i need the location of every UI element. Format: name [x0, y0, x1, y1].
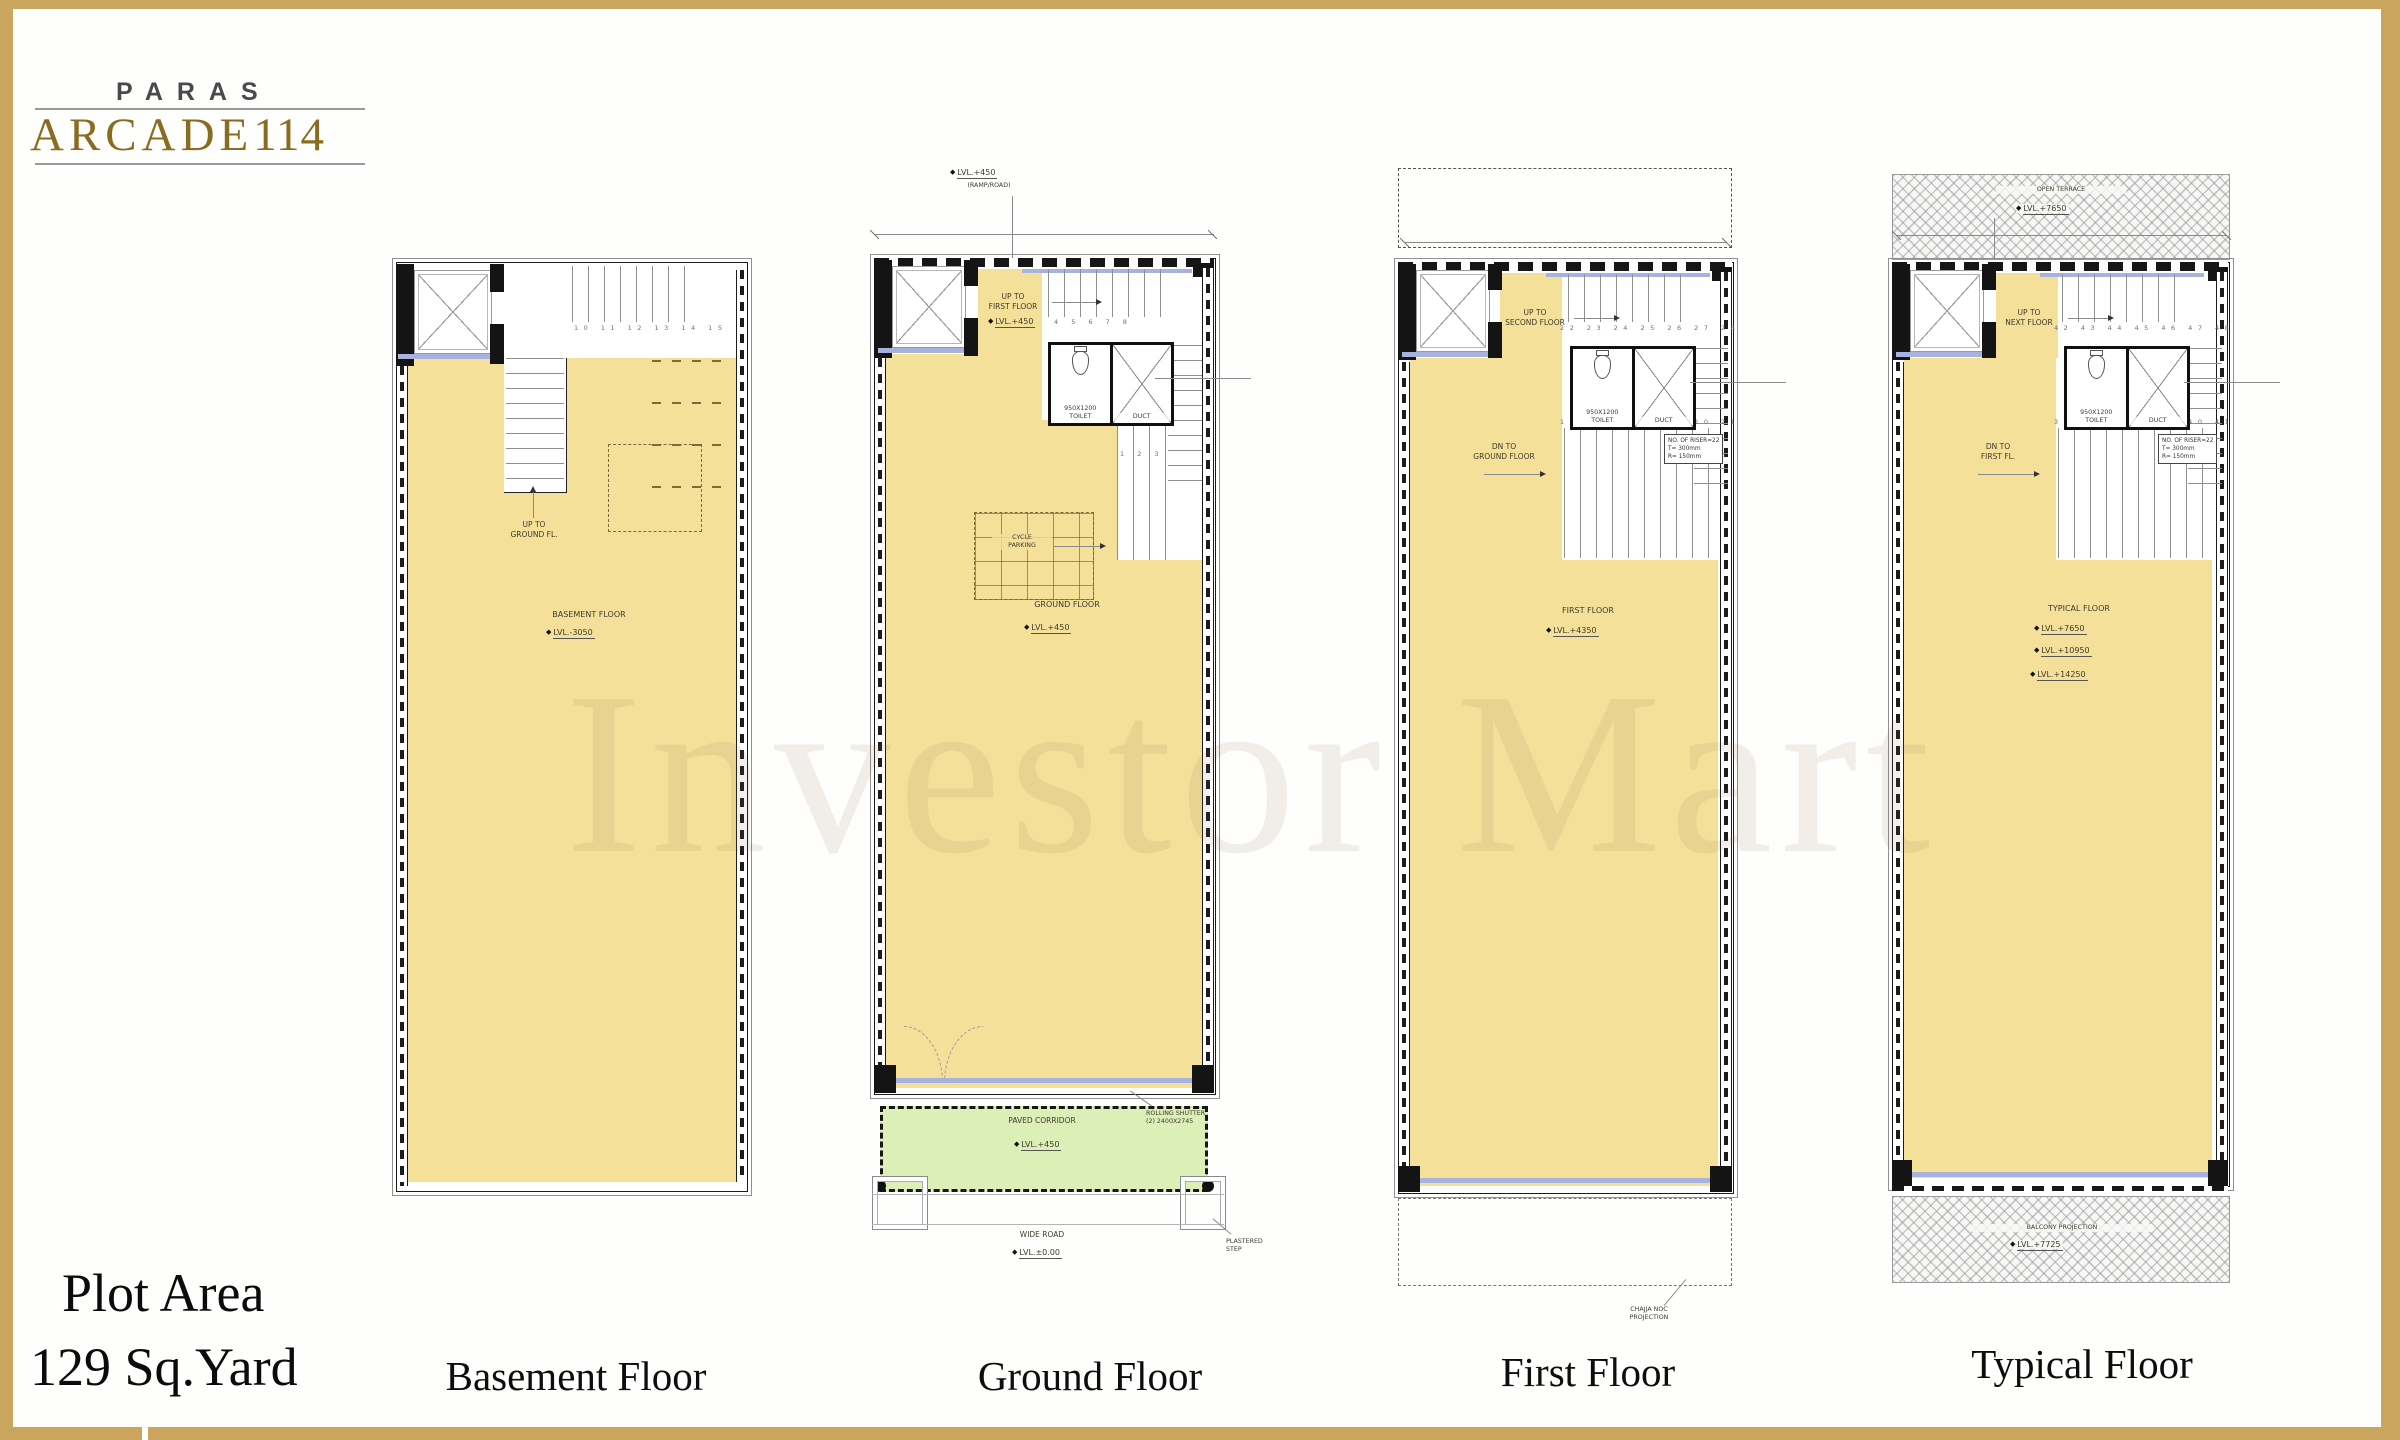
- balcony-level-text: LVL.+7725: [2017, 1240, 2062, 1251]
- basement-wall-block: [396, 264, 414, 366]
- riser-size: R= 150mm: [1668, 453, 1719, 461]
- typical-level-2: ◆LVL.+10950: [2034, 646, 2092, 655]
- kerb-note-line1: PLASTERED: [1226, 1238, 1263, 1245]
- frame-bottom-notch: [142, 1427, 148, 1440]
- ground-floor-area: [1042, 560, 1202, 1088]
- level-marker-icon: ◆: [2010, 1240, 2015, 1248]
- floor-plan-ground: ◆LVL.+450 (RAMP/ROAD) 4 5 6 7 8 1 2 3: [862, 168, 1226, 1313]
- kerb-note: PLASTERED STEP: [1226, 1238, 1296, 1254]
- stair-step-numbers: 42 43 44 45 46 47 48: [2054, 324, 2234, 332]
- up-label-line2: NEXT FLOOR: [2005, 318, 2053, 327]
- toilet-size: 950X1200: [1586, 409, 1618, 416]
- level-marker-icon: ◆: [988, 317, 993, 325]
- stair-treads-lower: [1117, 420, 1169, 560]
- frame-bottom: [0, 1427, 2400, 1440]
- lift-shaft: [1416, 270, 1490, 352]
- dimension-line: [874, 234, 1214, 235]
- dimension-line: [1404, 242, 1726, 243]
- shutter-note-line2: (2) 2400X2745: [1146, 1118, 1193, 1125]
- window-line: [1410, 1178, 1720, 1183]
- floor-plan-basement: 10 11 12 13 14 15 UP TO GROUND FL. BASEM…: [396, 262, 748, 1192]
- toilet-block: 950X1200 TOILET DUCT: [1570, 346, 1696, 430]
- duct-label: DUCT: [2129, 417, 2188, 425]
- open-to-below-outline: [1398, 168, 1732, 248]
- wall-block: [1982, 264, 1996, 290]
- stair-arrow-line: [1052, 302, 1096, 303]
- duct-shaft: DUCT: [1632, 349, 1694, 427]
- toilet-room: 950X1200 TOILET: [1573, 349, 1632, 427]
- arrow-right-icon: [2108, 315, 2114, 321]
- ramp-level: ◆LVL.+450: [950, 168, 997, 177]
- dn-label-line1: DN TO: [1986, 442, 2010, 451]
- caption-basement: Basement Floor: [404, 1352, 748, 1400]
- grid-label-line1: CYCLE: [1012, 534, 1032, 541]
- wall-block: [1488, 264, 1502, 290]
- leader-line: [1155, 378, 1251, 379]
- window-line: [1904, 1172, 2212, 1177]
- toilet-size: 950X1200: [1064, 405, 1096, 412]
- first-room-label: FIRST FLOOR: [1538, 606, 1638, 616]
- noc-note-line1: CHAJJA NOC: [1630, 1306, 1667, 1313]
- corner-block: [1192, 1065, 1214, 1093]
- level-marker-icon: ◆: [1014, 1140, 1019, 1148]
- dn-label-line2: GROUND FLOOR: [1473, 452, 1534, 461]
- toilet-room: 950X1200 TOILET: [2067, 349, 2126, 427]
- stair-data-box: NO. OF RISER=22 T= 300mm R= 150mm: [1664, 434, 1723, 464]
- ramp-note: (RAMP/ROAD): [944, 182, 1034, 190]
- shutter-note: ROLLING SHUTTER (2) 2400X2745: [1146, 1110, 1228, 1126]
- first-floor-area: [1410, 358, 1562, 1186]
- toilet-name: TOILET: [1591, 417, 1613, 424]
- noc-note: CHAJJA NOC PROJECTION: [1604, 1306, 1694, 1322]
- dim-tick: [870, 230, 879, 239]
- arrow-right-icon: [1614, 315, 1620, 321]
- typical-wall-bottom: [1892, 1186, 2228, 1191]
- floor-plan-first: 22 23 24 25 26 27 28 15 16 17 18 19 20 2…: [1388, 166, 1742, 1356]
- arrow-right-icon: [1100, 543, 1106, 549]
- duct-shaft: DUCT: [1110, 345, 1172, 423]
- level-marker-icon: ◆: [2030, 670, 2035, 678]
- arrow-right-icon: [1096, 299, 1102, 305]
- lift-door-line: [1402, 352, 1488, 357]
- dim-tick: [2222, 231, 2231, 240]
- toilet-block: 950X1200 TOILET DUCT: [1048, 342, 1174, 426]
- wall-block: [1892, 264, 1910, 360]
- ground-floor-area: [978, 269, 1042, 354]
- tread-size: T= 300mm: [1668, 445, 1719, 453]
- caption-first: First Floor: [1416, 1348, 1760, 1396]
- terrace-level: ◆LVL.+7650: [2016, 204, 2069, 213]
- dimension-line: [1896, 235, 2226, 236]
- up-label-line2: FIRST FLOOR: [989, 302, 1038, 311]
- wall-block: [964, 260, 978, 286]
- lift-shaft: [414, 270, 492, 354]
- stair-step-numbers: 22 23 24 25 26 27 28: [1560, 324, 1740, 332]
- riser-size: R= 150mm: [2162, 453, 2213, 461]
- first-floor-area: [1562, 560, 1718, 1186]
- arrow-right-icon: [2034, 471, 2040, 477]
- balcony-level: ◆LVL.+7725: [2010, 1240, 2063, 1249]
- corridor-level-text: LVL.+450: [1021, 1140, 1061, 1151]
- typical-up-label: UP TO NEXT FLOOR: [1994, 308, 2064, 328]
- toilet-name: TOILET: [1069, 413, 1091, 420]
- dn-label-line2: FIRST FL.: [1981, 452, 2015, 461]
- up-label-line1: UP TO: [523, 520, 546, 529]
- stair-arrow-line: [1574, 318, 1614, 319]
- level-marker-icon: ◆: [1024, 623, 1029, 631]
- brand-main-text: ARCADE114: [30, 108, 325, 162]
- tread-size: T= 300mm: [2162, 445, 2213, 453]
- brand-number: 114: [253, 109, 325, 161]
- first-level-text: LVL.+4350: [1553, 626, 1598, 637]
- parking-grid: [974, 512, 1094, 600]
- entry-level: ◆LVL.+450: [988, 317, 1035, 326]
- basement-room-label: BASEMENT FLOOR: [534, 610, 644, 620]
- floor-plan-typical: OPEN TERRACE ◆LVL.+7650 42 43 44 45 46 4…: [1886, 166, 2236, 1291]
- toilet-block: 950X1200 TOILET DUCT: [2064, 346, 2190, 430]
- wall-block: [874, 260, 892, 358]
- up-label-line2: SECOND FLOOR: [1505, 318, 1565, 327]
- road-level-text: LVL.±0.00: [1019, 1248, 1062, 1259]
- parking-bay: [608, 444, 702, 532]
- ramp-level-text: LVL.+450: [957, 168, 997, 179]
- stair-step-numbers: 1 2 3: [1120, 450, 1164, 458]
- lift-door-line: [398, 354, 490, 359]
- stair-step-numbers: 4 5 6 7 8: [1054, 318, 1132, 326]
- ground-up-label: UP TO FIRST FLOOR: [978, 292, 1048, 312]
- typical-level-3-text: LVL.+14250: [2037, 670, 2087, 681]
- duct-label: DUCT: [1113, 413, 1172, 421]
- lift-door-line: [878, 348, 964, 353]
- ground-room-label: GROUND FLOOR: [1012, 600, 1122, 610]
- up-label-line1: UP TO: [2018, 308, 2041, 317]
- kerb-line: [872, 1224, 1224, 1225]
- basement-wall-left: [396, 366, 408, 1186]
- wall-block: [964, 318, 978, 356]
- basement-up-label: UP TO GROUND FL.: [494, 520, 574, 540]
- ground-level: ◆LVL.+450: [1024, 623, 1071, 632]
- basement-step-numbers: 10 11 12 13 14 15: [574, 324, 727, 332]
- duct-shaft: DUCT: [2126, 349, 2188, 427]
- typical-room-label: TYPICAL FLOOR: [2024, 604, 2134, 614]
- grid-label-line2: PARKING: [1008, 542, 1036, 549]
- toilet-label: 950X1200 TOILET: [1573, 409, 1632, 425]
- basement-stair-treads: [506, 358, 564, 490]
- arrow-right-icon: [1540, 471, 1546, 477]
- duct-label: DUCT: [1635, 417, 1694, 425]
- frame-left: [0, 0, 13, 1440]
- arrow-up-icon: [530, 486, 536, 492]
- riser-count: NO. OF RISER=22: [2162, 437, 2213, 445]
- typical-level-3: ◆LVL.+14250: [2030, 670, 2088, 679]
- level-marker-icon: ◆: [2034, 624, 2039, 632]
- corridor-label: PAVED CORRIDOR: [962, 1116, 1122, 1126]
- leader-line: [1012, 196, 1013, 258]
- logo-rule-bottom: [35, 163, 365, 165]
- noc-note-line2: PROJECTION: [1630, 1314, 1669, 1321]
- parking-mark: [652, 402, 732, 404]
- first-dn-label: DN TO GROUND FLOOR: [1466, 442, 1542, 462]
- shopfront-glazing-line: [886, 1078, 1202, 1083]
- dim-tick: [1892, 231, 1901, 240]
- leader-line: [1690, 382, 1786, 383]
- basement-wall-right: [736, 270, 748, 1182]
- toilet-label: 950X1200 TOILET: [2067, 409, 2126, 425]
- up-label-line1: UP TO: [1002, 292, 1025, 301]
- ground-wall-left: [874, 358, 886, 1088]
- caption-ground: Ground Floor: [918, 1352, 1262, 1400]
- level-marker-icon: ◆: [546, 628, 551, 636]
- plot-area-title: Plot Area: [62, 1262, 264, 1324]
- first-up-label: UP TO SECOND FLOOR: [1500, 308, 1570, 328]
- parking-mark: [652, 360, 732, 362]
- typical-level-1: ◆LVL.+7650: [2034, 624, 2087, 633]
- leader-line: [1054, 546, 1100, 547]
- basement-level-text: LVL.-3050: [553, 628, 594, 639]
- toilet-size: 950X1200: [2080, 409, 2112, 416]
- terrace-level-text: LVL.+7650: [2023, 204, 2068, 215]
- kerb-line: [872, 1194, 1224, 1195]
- first-wall-left: [1398, 362, 1410, 1186]
- corner-block: [1892, 1160, 1912, 1186]
- entry-level-text: LVL.+450: [995, 317, 1035, 328]
- wc-icon: [1072, 351, 1089, 375]
- toilet-name: TOILET: [2085, 417, 2107, 424]
- stair-treads-upper: [1048, 269, 1168, 317]
- brand-top-text: PARAS: [116, 78, 272, 107]
- wall-block: [1398, 264, 1416, 360]
- stair-arrow-line: [533, 492, 534, 518]
- stair-arrow-line: [1978, 474, 2034, 475]
- typical-dn-label: DN TO FIRST FL.: [1960, 442, 2036, 462]
- dim-tick: [1722, 238, 1731, 247]
- stair-arrow-line: [1484, 474, 1540, 475]
- ground-wall-right: [1202, 268, 1214, 1088]
- frame-right: [2381, 0, 2400, 1440]
- corner-block: [2208, 1160, 2228, 1186]
- lift-shaft: [892, 266, 966, 348]
- stair-arrow-line: [2068, 318, 2108, 319]
- basement-wall-block: [490, 264, 504, 292]
- corridor-level: ◆LVL.+450: [1014, 1140, 1061, 1149]
- terrace-label: OPEN TERRACE: [1996, 186, 2126, 194]
- brochure-page: PARAS ARCADE114 10 11 12 13 14 15 UP: [0, 0, 2400, 1440]
- typical-wall-left: [1892, 362, 1904, 1180]
- ground-floor-area: [886, 354, 1042, 1088]
- level-marker-icon: ◆: [1012, 1248, 1017, 1256]
- column-base: [1180, 1176, 1226, 1230]
- up-label-line2: GROUND FL.: [510, 530, 557, 539]
- lift-shaft: [1910, 270, 1984, 352]
- corner-block: [1710, 1166, 1732, 1192]
- grid-label: CYCLE PARKING: [992, 534, 1052, 550]
- level-marker-icon: ◆: [1546, 626, 1551, 634]
- wc-icon: [1594, 355, 1611, 379]
- stair-data-box: NO. OF RISER=22 T= 300mm R= 150mm: [2158, 434, 2217, 464]
- wc-icon: [2088, 355, 2105, 379]
- plot-area-value: 129 Sq.Yard: [30, 1336, 298, 1398]
- riser-count: NO. OF RISER=22: [1668, 437, 1719, 445]
- lift-door-line: [1896, 352, 1982, 357]
- road-level: ◆LVL.±0.00: [1012, 1248, 1062, 1257]
- frame-top: [0, 0, 2400, 9]
- first-level: ◆LVL.+4350: [1546, 626, 1599, 635]
- leader-line: [2184, 382, 2280, 383]
- corner-block: [874, 1065, 896, 1093]
- corner-block: [1398, 1166, 1420, 1192]
- toilet-room: 950X1200 TOILET: [1051, 345, 1110, 423]
- typical-floor-area: [1904, 358, 2056, 1178]
- level-marker-icon: ◆: [2016, 204, 2021, 212]
- basement-upper-treads: [572, 266, 698, 322]
- basement-wall-block: [490, 324, 504, 364]
- shutter-note-line1: ROLLING SHUTTER: [1146, 1110, 1205, 1117]
- stair-treads-upper: [1568, 274, 1688, 322]
- dim-tick: [1208, 230, 1217, 239]
- dim-tick: [1400, 238, 1409, 247]
- level-marker-icon: ◆: [2034, 646, 2039, 654]
- level-marker-icon: ◆: [950, 168, 955, 176]
- up-label-line1: UP TO: [1524, 308, 1547, 317]
- kerb-note-line2: STEP: [1226, 1246, 1242, 1253]
- caption-typical: Typical Floor: [1910, 1340, 2254, 1388]
- typical-level-1-text: LVL.+7650: [2041, 624, 2086, 635]
- noc-projection-outline: [1398, 1198, 1732, 1286]
- basement-level: ◆LVL.-3050: [546, 628, 595, 637]
- stair-treads-upper: [2062, 274, 2182, 322]
- typical-level-2-text: LVL.+10950: [2041, 646, 2091, 657]
- leader-line: [1994, 218, 1995, 260]
- ground-level-text: LVL.+450: [1031, 623, 1071, 634]
- brand-arcade: ARCADE: [30, 109, 253, 161]
- balcony-label: BALCONY PROJECTION: [1972, 1224, 2152, 1232]
- dn-label-line1: DN TO: [1492, 442, 1516, 451]
- column-base: [872, 1176, 928, 1230]
- road-label: WIDE ROAD: [982, 1230, 1102, 1240]
- toilet-label: 950X1200 TOILET: [1051, 405, 1110, 421]
